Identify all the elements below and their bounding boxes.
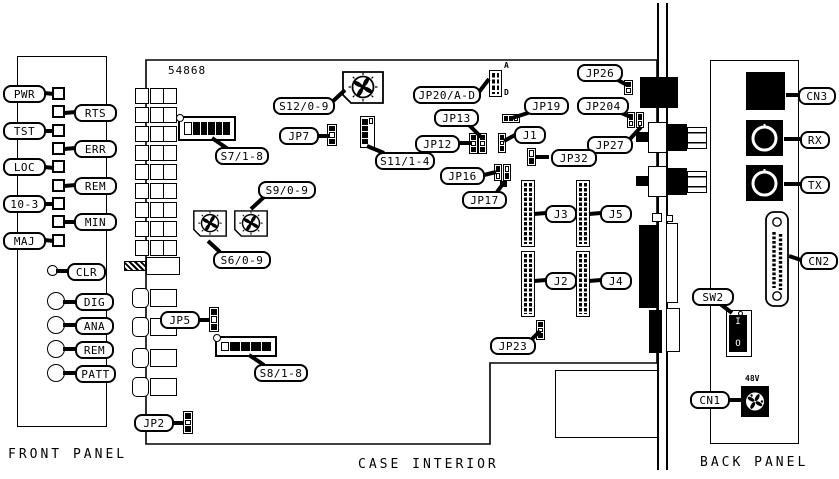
label-s11: S11/1-4 — [375, 152, 435, 170]
cn2-dsub-connector — [765, 211, 789, 307]
label-jp23: JP23 — [490, 337, 536, 355]
label-err: ERR — [74, 140, 117, 158]
jumper-jp17-cell — [500, 181, 507, 187]
jumper-jp7 — [327, 124, 337, 146]
led-rem — [52, 179, 65, 192]
bracket-tab-2 — [666, 215, 673, 222]
header-j3 — [521, 180, 535, 247]
jack-patt — [47, 364, 65, 382]
led-mount — [135, 240, 177, 256]
led-mount — [135, 88, 177, 104]
jumper-jp12 — [469, 133, 478, 154]
cn3-module — [640, 77, 678, 108]
led-maj — [52, 234, 65, 247]
led-mount — [135, 202, 177, 218]
switch-off-mark: O — [735, 340, 740, 349]
label-j1: J1 — [514, 126, 546, 144]
label-jp17: JP17 — [462, 191, 507, 209]
label-jp2: JP2 — [134, 414, 174, 432]
label-patt: PATT — [75, 365, 116, 383]
led-pwr — [52, 87, 65, 100]
front-panel-title: FRONT PANEL — [8, 447, 123, 462]
screw-shaft — [124, 261, 146, 271]
label-pwr: PWR — [3, 85, 46, 103]
label-rem-jack: REM — [75, 341, 114, 359]
header-jp20 — [489, 70, 502, 97]
label-rx: RX — [800, 131, 830, 149]
jumper-jp23 — [536, 320, 545, 340]
label-j5: J5 — [600, 205, 632, 223]
led-mount — [135, 145, 177, 161]
label-jp26: JP26 — [577, 64, 623, 82]
bracket-tab — [652, 213, 662, 222]
label-tst: TST — [3, 122, 46, 140]
case-interior-title: CASE INTERIOR — [358, 457, 483, 472]
board-number: 54868 — [168, 64, 206, 77]
power-supply-box — [555, 370, 660, 438]
bracket-connector-upper — [666, 223, 678, 303]
jumper-jp26 — [624, 80, 633, 95]
rocker-switch: I O — [729, 315, 747, 352]
jack-dig — [47, 292, 65, 310]
label-min: MIN — [74, 213, 117, 231]
label-j3: J3 — [545, 205, 577, 223]
header-j2 — [521, 251, 535, 317]
rotary-switch-s12 — [342, 71, 384, 104]
jumper-jp16-a — [494, 164, 502, 181]
label-jp13: JP13 — [434, 109, 479, 127]
led-mount — [135, 164, 177, 180]
board-edge-component-2 — [649, 310, 662, 353]
jack-mount — [132, 377, 177, 397]
label-jp16: JP16 — [440, 167, 485, 185]
label-maj: MAJ — [3, 232, 46, 250]
jack-mount — [132, 348, 177, 368]
jumper-jp204-b — [636, 112, 644, 128]
header-mark-d: D — [504, 88, 509, 97]
jumper-jp16-b — [503, 164, 511, 181]
jumper-jp32 — [527, 148, 536, 166]
rotary-switch-s9 — [234, 207, 268, 240]
label-jp19: JP19 — [524, 97, 569, 115]
led-err — [52, 142, 65, 155]
label-clr: CLR — [67, 263, 106, 281]
jack-clr — [47, 265, 58, 276]
tx-bnc-barrel — [687, 171, 707, 193]
header-mark-a: A — [504, 61, 509, 70]
bracket-connector-lower — [666, 308, 680, 352]
led-mount — [135, 221, 177, 237]
label-jp7: JP7 — [279, 127, 319, 145]
cn1-power-connector — [741, 386, 769, 417]
label-rem: REM — [74, 177, 117, 195]
led-10-3 — [52, 197, 65, 210]
label-jp204: JP204 — [577, 97, 629, 115]
led-loc — [52, 160, 65, 173]
jumper-jp13 — [478, 133, 487, 154]
label-jp20: JP20/A-D — [413, 86, 481, 104]
label-s8: S8/1-8 — [254, 364, 308, 382]
jumper-jp5 — [209, 307, 219, 332]
label-s12: S12/0-9 — [273, 97, 335, 115]
hardware-diagram: 54868 — [0, 0, 839, 479]
led-mount — [135, 126, 177, 142]
tx-bnc-plug — [648, 166, 667, 197]
label-s6: S6/0-9 — [213, 251, 271, 269]
label-10-3: 10-3 — [3, 195, 46, 213]
jumper-j1 — [498, 133, 506, 153]
jumper-jp19 — [502, 114, 520, 123]
rx-bnc-body — [666, 124, 687, 151]
label-sw2: SW2 — [692, 288, 734, 306]
label-s7: S7/1-8 — [215, 147, 269, 165]
dip-switch-s7 — [178, 116, 236, 141]
dip-switch-s11 — [360, 116, 375, 148]
label-jp12: JP12 — [415, 135, 460, 153]
jack-ana — [47, 316, 65, 334]
jack-mount — [132, 288, 177, 308]
label-j4: J4 — [600, 272, 632, 290]
label-jp5: JP5 — [160, 311, 200, 329]
jack-rem — [47, 340, 65, 358]
voltage-label: 48V — [745, 374, 759, 383]
jumper-jp204-a — [627, 112, 635, 128]
rx-bnc-barrel — [687, 127, 707, 149]
label-cn1: CN1 — [690, 391, 730, 409]
label-ana: ANA — [75, 317, 114, 335]
pin1-dot — [176, 114, 184, 122]
label-tx: TX — [800, 176, 830, 194]
led-mount — [135, 183, 177, 199]
pin1-dot — [213, 334, 221, 342]
dip-switch-s8 — [215, 336, 277, 357]
back-panel-title: BACK PANEL — [700, 455, 805, 470]
tx-connector — [746, 165, 783, 201]
label-jp32: JP32 — [551, 149, 597, 167]
cn3-connector — [746, 72, 785, 110]
header-j4 — [576, 251, 590, 317]
screw-head — [146, 257, 180, 275]
label-cn3: CN3 — [798, 87, 836, 105]
led-min — [52, 215, 65, 228]
switch-on-mark: I — [735, 318, 740, 327]
jumper-jp2 — [183, 411, 193, 434]
led-tst — [52, 124, 65, 137]
label-dig: DIG — [75, 293, 114, 311]
label-j2: J2 — [545, 272, 577, 290]
rx-connector — [746, 120, 783, 156]
label-cn2: CN2 — [800, 252, 838, 270]
label-s9: S9/0-9 — [258, 181, 316, 199]
tx-bnc-body — [666, 168, 687, 195]
led-rts — [52, 105, 65, 118]
header-j5 — [576, 180, 590, 247]
power-switch-sw2: I O — [726, 310, 752, 357]
rotary-switch-s6 — [193, 207, 227, 240]
rx-bnc-plug — [648, 122, 667, 153]
label-rts: RTS — [74, 104, 117, 122]
label-loc: LOC — [3, 158, 46, 176]
led-mount — [135, 107, 177, 123]
board-edge-component — [639, 225, 659, 308]
